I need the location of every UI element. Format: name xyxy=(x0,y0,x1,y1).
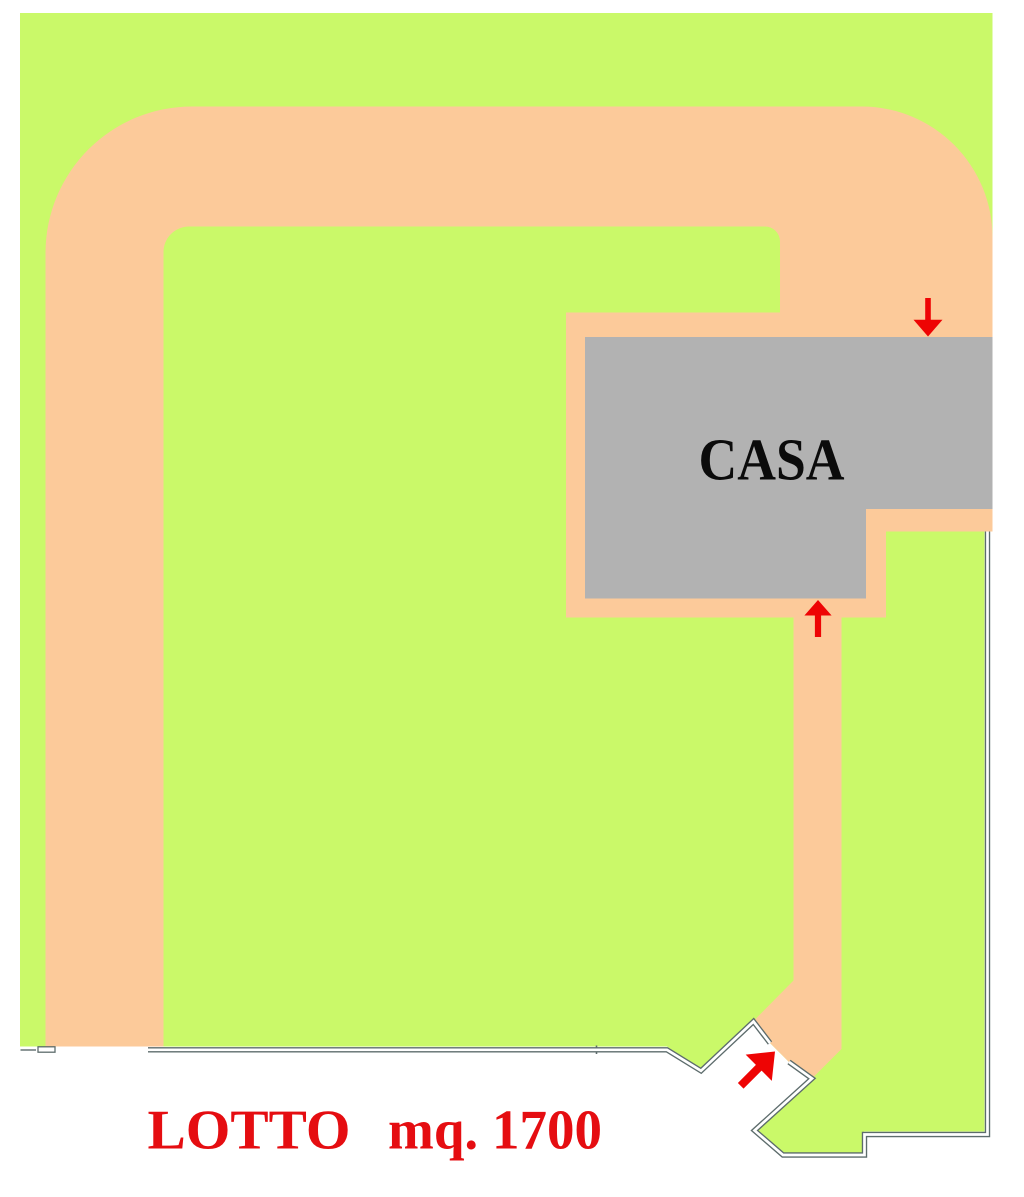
svg-text:mq. 1700: mq. 1700 xyxy=(388,1100,602,1162)
svg-text:CASA: CASA xyxy=(699,426,845,492)
svg-text:LOTTO: LOTTO xyxy=(148,1100,351,1162)
